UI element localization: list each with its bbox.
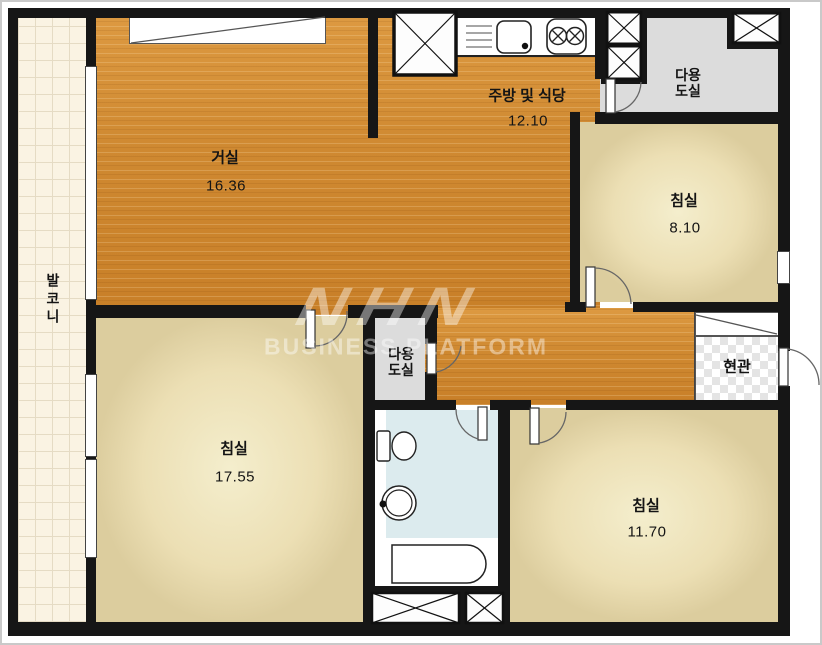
- bedroom-bottom-label: 침실: [632, 495, 660, 516]
- kitchen-label: 주방 및 식당: [488, 85, 565, 106]
- wall-outer-right-lower: [778, 386, 790, 636]
- bedroom-right-label: 침실: [670, 190, 698, 211]
- utility-mid-line1: 다용: [388, 346, 414, 362]
- utility-top-label: 다용 도실: [675, 67, 701, 99]
- shoe-cabinet: [695, 312, 779, 336]
- utility-top-line1: 다용: [675, 67, 701, 83]
- hallway-floor: [425, 308, 695, 405]
- wall-hall-bottom-b: [490, 400, 531, 410]
- wardrobe: [129, 16, 326, 44]
- wall-bedroom-left-right: [363, 305, 375, 630]
- wall-outer-right-upper: [778, 8, 790, 351]
- door-entrance: [779, 348, 819, 386]
- wall-bedroom-right-bottom-a: [565, 302, 586, 312]
- utility-mid-line2: 도실: [388, 362, 414, 378]
- wall-utility-bedroom: [595, 112, 785, 124]
- wall-living-kitchen-stub: [368, 8, 378, 138]
- wall-hall-bottom-c: [566, 400, 790, 410]
- wall-duct-kitchen: [601, 8, 647, 84]
- living-kitchen-floor: [90, 12, 600, 315]
- kitchen-area: 12.10: [508, 113, 548, 130]
- wall-bedroom-right-bottom-b: [633, 302, 790, 312]
- utility-top-line2: 도실: [675, 83, 701, 99]
- bedroom-right-area: 8.10: [669, 220, 700, 237]
- kitchen-counter: [455, 18, 595, 57]
- entrance-label: 현관: [723, 356, 751, 377]
- wall-utility-mid-upper: [425, 312, 437, 344]
- living-label: 거실: [211, 147, 239, 168]
- wall-duct-bathroom: [363, 586, 510, 630]
- wall-living-bedroom-a: [86, 305, 306, 318]
- bedroom-bottom-area: 11.70: [628, 524, 667, 541]
- wall-outer-left: [8, 8, 18, 636]
- wall-duct-top-right: [727, 8, 786, 49]
- bedroom-right-floor: [578, 122, 778, 302]
- wall-bedroom-right-left: [570, 112, 580, 312]
- wall-hall-bottom-a: [363, 400, 456, 410]
- living-area: 16.36: [206, 178, 246, 195]
- balcony-label: 발코니: [43, 273, 63, 327]
- utility-mid-label: 다용 도실: [388, 346, 414, 378]
- bedroom-left-area: 17.55: [215, 469, 255, 486]
- window-living: [85, 66, 97, 300]
- window-bedroom-right: [777, 251, 790, 284]
- window-bedroom-left-a: [85, 374, 97, 457]
- wall-outer-top: [8, 8, 790, 18]
- bedroom-left-label: 침실: [220, 438, 248, 459]
- floor-plan: 발코니 거실 16.36 주방 및 식당 12.10 다용 도실 침실 8.10…: [0, 0, 822, 645]
- window-bedroom-left-b: [85, 459, 97, 558]
- bathroom-wet-floor: [386, 410, 498, 538]
